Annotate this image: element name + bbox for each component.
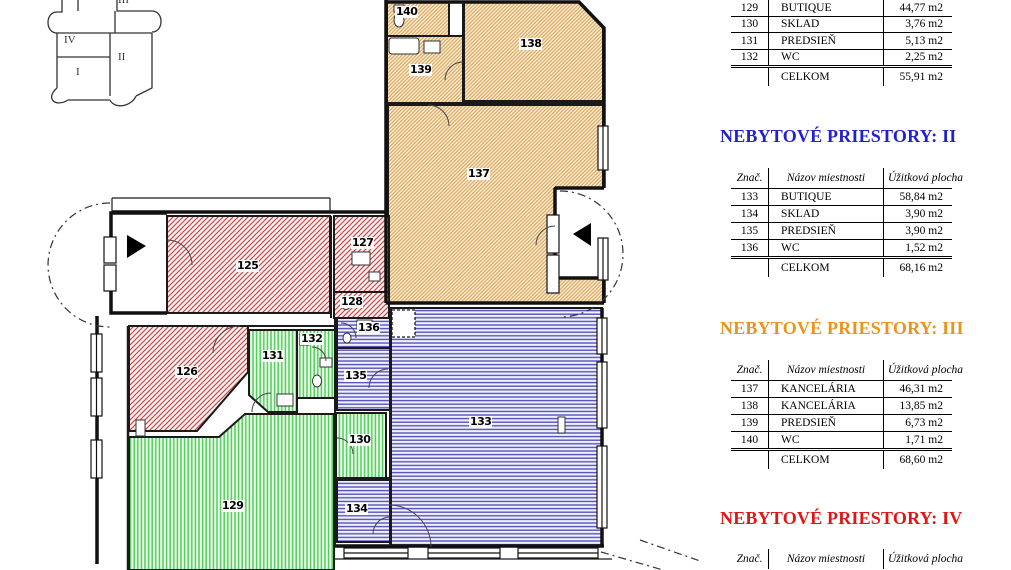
room-label-138: 138 — [519, 38, 542, 50]
keyplan-label-IV: IV — [64, 34, 76, 46]
section-title-III: NEBYTOVÉ PRIESTORY: III — [720, 318, 964, 339]
floor-plan-drawing — [0, 0, 700, 570]
room-label-140: 140 — [395, 6, 418, 18]
room-label-136: 136 — [357, 322, 380, 334]
shaft — [392, 310, 415, 337]
room-label-130: 130 — [348, 434, 371, 446]
keyplan-label-II: II — [118, 51, 125, 63]
room-label-131: 131 — [261, 350, 284, 362]
table-row: 138 KANCELÁRIA 13,85 m2 — [731, 398, 952, 415]
table-row: 131 PREDSIEŇ 5,13 m2 — [731, 33, 952, 50]
room-label-129: 129 — [221, 500, 244, 512]
table-row: 137 KANCELÁRIA 46,31 m2 — [731, 381, 952, 398]
section-title-II: NEBYTOVÉ PRIESTORY: II — [720, 126, 957, 147]
table-header-row: Znač. Názov miestnosti Úžitková plocha — [731, 168, 952, 189]
room-label-135: 135 — [344, 370, 367, 382]
table-header-row: Znač. Názov miestnosti Úžitková plocha — [731, 549, 952, 569]
table-total-row: CELKOM 55,91 m2 — [731, 68, 952, 86]
table-total-row: CELKOM 68,60 m2 — [731, 451, 952, 469]
key-plan — [48, 0, 161, 106]
arrow-left-icon — [127, 235, 146, 258]
section-title-IV: NEBYTOVÉ PRIESTORY: IV — [720, 508, 963, 529]
keyplan-label-I: I — [76, 66, 80, 78]
keyplan-label-III: III — [118, 0, 129, 6]
table-row: 129 BUTIQUE 44,77 m2 — [731, 0, 952, 17]
table-header-row: Znač. Názov miestnosti Úžitková plocha — [731, 360, 952, 381]
table-row: 134 SKLAD 3,90 m2 — [731, 206, 952, 223]
room-label-137: 137 — [467, 168, 490, 180]
area-table-III: Znač. Názov miestnosti Úžitková plocha 1… — [731, 360, 952, 469]
table-row: 133 BUTIQUE 58,84 m2 — [731, 189, 952, 206]
table-row: 140 WC 1,71 m2 — [731, 432, 952, 451]
area-table-IV: Znač. Názov miestnosti Úžitková plocha — [731, 549, 952, 569]
room-label-133: 133 — [469, 416, 492, 428]
room-label-126: 126 — [175, 366, 198, 378]
table-row: 130 SKLAD 3,76 m2 — [731, 17, 952, 34]
area-table-II: Znač. Názov miestnosti Úžitková plocha 1… — [731, 168, 952, 277]
area-table-I: 129 BUTIQUE 44,77 m2 130 SKLAD 3,76 m2 1… — [731, 0, 952, 86]
table-row: 139 PREDSIEŇ 6,73 m2 — [731, 415, 952, 432]
table-row: 132 WC 2,25 m2 — [731, 50, 952, 69]
room-label-139: 139 — [409, 64, 432, 76]
page: I II III IV 125 126 127 128 129 130 131 … — [0, 0, 1011, 570]
table-row: 136 WC 1,52 m2 — [731, 240, 952, 259]
room-label-125: 125 — [236, 260, 259, 272]
table-total-row: CELKOM 68,16 m2 — [731, 259, 952, 277]
room-label-127: 127 — [351, 237, 374, 249]
table-row: 135 PREDSIEŇ 3,90 m2 — [731, 223, 952, 240]
room-label-128: 128 — [340, 296, 363, 308]
arrow-right-icon — [573, 223, 591, 246]
room-label-132: 132 — [300, 333, 323, 345]
room-label-134: 134 — [345, 503, 368, 515]
